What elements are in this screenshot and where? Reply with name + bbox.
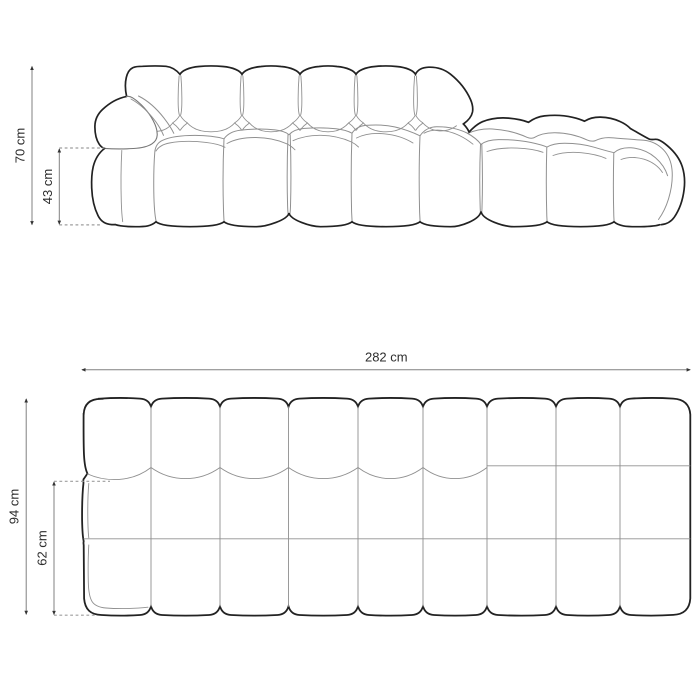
svg-text:43 cm: 43 cm bbox=[40, 169, 55, 204]
svg-text:70 cm: 70 cm bbox=[13, 128, 28, 163]
svg-text:282 cm: 282 cm bbox=[365, 350, 408, 365]
svg-text:62 cm: 62 cm bbox=[35, 530, 50, 565]
svg-text:94 cm: 94 cm bbox=[7, 489, 22, 524]
